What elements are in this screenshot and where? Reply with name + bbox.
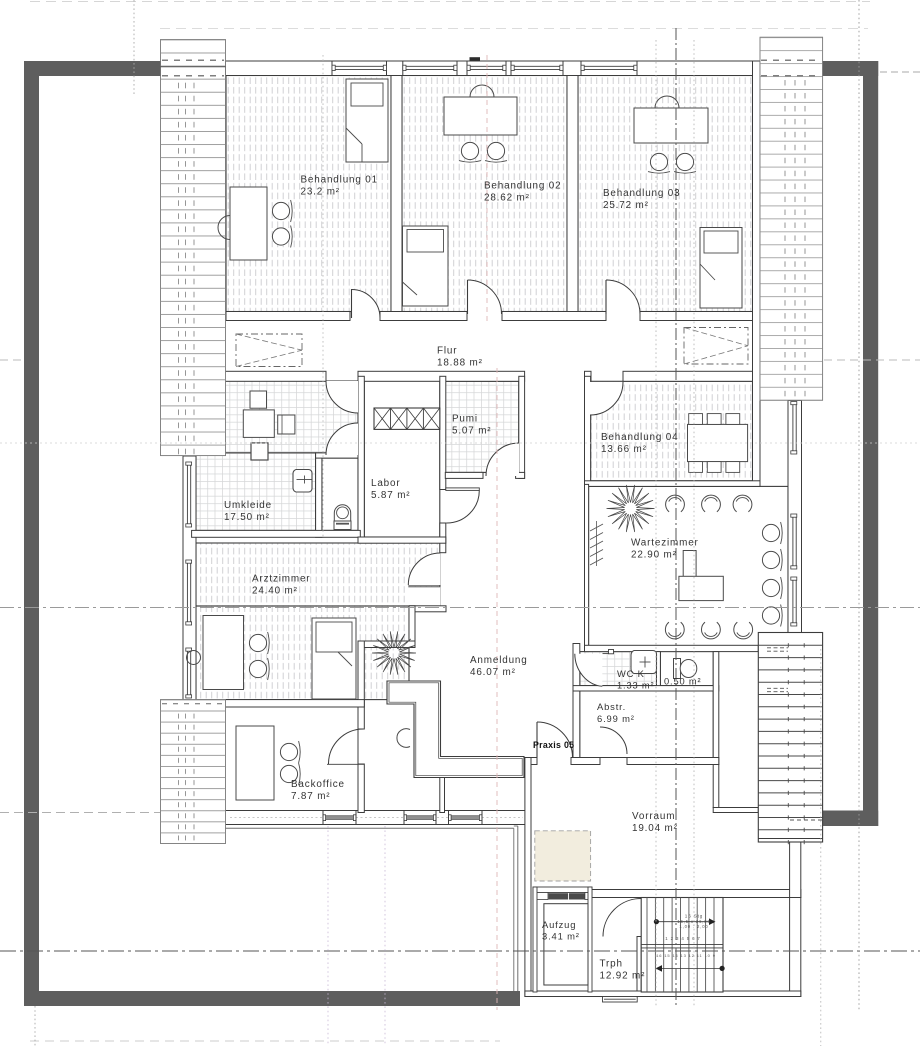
svg-text:Aufzug: Aufzug [542,919,576,930]
svg-text:12.92 m²: 12.92 m² [600,971,646,982]
svg-text:46.07 m²: 46.07 m² [470,667,516,678]
svg-text:Anmeldung: Anmeldung [470,655,528,666]
svg-text:24.40 m²: 24.40 m² [252,586,298,597]
svg-text:Wartezimmer: Wartezimmer [631,538,699,549]
svg-text:17.50 m²: 17.50 m² [224,512,270,523]
svg-text:6.99 m²: 6.99 m² [597,713,635,724]
svg-text:Labor: Labor [371,478,401,489]
svg-text:1.33 m²: 1.33 m² [617,681,654,691]
svg-text:Flur: Flur [437,346,457,357]
svg-text:Backoffice: Backoffice [291,779,345,790]
svg-text:19.04 m²: 19.04 m² [632,823,678,834]
svg-text:5.07 m²: 5.07 m² [452,426,491,437]
svg-text:Vorraum: Vorraum [632,811,675,822]
svg-text:25.72 m²: 25.72 m² [603,200,649,211]
svg-text:22.90 m²: 22.90 m² [631,550,677,561]
svg-text:WC K: WC K [617,669,645,679]
svg-text:Arztzimmer: Arztzimmer [252,574,310,585]
svg-text:Pumi: Pumi [452,414,478,425]
svg-text:Behandlung 01: Behandlung 01 [301,175,379,186]
svg-text:0.50 m²: 0.50 m² [664,677,701,687]
svg-text:Abstr.: Abstr. [597,701,626,712]
svg-text:28.62 m²: 28.62 m² [484,193,530,204]
svg-text:5.87 m²: 5.87 m² [371,490,410,501]
svg-text:7.87 m²: 7.87 m² [291,791,330,802]
svg-text:1 2 3 4 5 6 7: 1 2 3 4 5 6 7 [665,936,700,941]
svg-text:3.41 m²: 3.41 m² [542,931,580,942]
svg-text:Umkleide: Umkleide [224,500,272,511]
svg-text:13.66 m²: 13.66 m² [601,444,647,455]
svg-text:Behandlung 02: Behandlung 02 [484,181,562,192]
svg-text:Behandlung 04: Behandlung 04 [601,432,679,443]
svg-text:Praxis 05: Praxis 05 [533,740,574,750]
svg-text:23.2 m²: 23.2 m² [301,187,340,198]
svg-text:Behandlung 03: Behandlung 03 [603,188,681,199]
svg-text:18.88 m²: 18.88 m² [437,358,483,369]
svg-text:16 15 14 13 12 11 10 9: 16 15 14 13 12 11 10 9 [656,953,716,958]
svg-text:Trph: Trph [600,959,623,970]
